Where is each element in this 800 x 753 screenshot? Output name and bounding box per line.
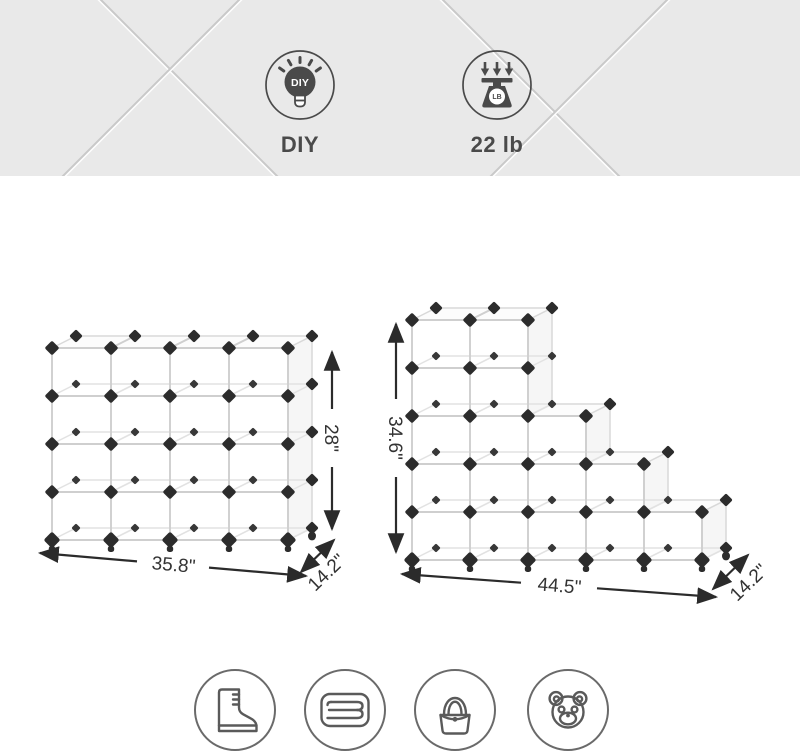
dimension-diagrams: 35.8" 28" 14.2" 34.6" 44.5" 14.2" bbox=[0, 0, 800, 753]
folded-towel-icon bbox=[303, 668, 387, 752]
staircase-rack-depth-dim: 14.2" bbox=[726, 560, 772, 605]
teddy-bear-icon bbox=[526, 668, 610, 752]
staircase-rack-width-dim: 44.5" bbox=[537, 574, 582, 598]
cube-rack-4x4-diagram bbox=[44, 329, 319, 552]
left-rack-depth-dim: 14.2" bbox=[304, 550, 350, 595]
left-rack-height-dim: 28" bbox=[320, 424, 341, 452]
handbag-icon bbox=[413, 668, 497, 752]
left-rack-width-dim: 35.8" bbox=[151, 553, 196, 578]
cube-rack-staircase-diagram bbox=[404, 301, 733, 572]
boot-icon bbox=[193, 668, 277, 752]
staircase-rack-height-dim: 34.6" bbox=[384, 416, 405, 460]
